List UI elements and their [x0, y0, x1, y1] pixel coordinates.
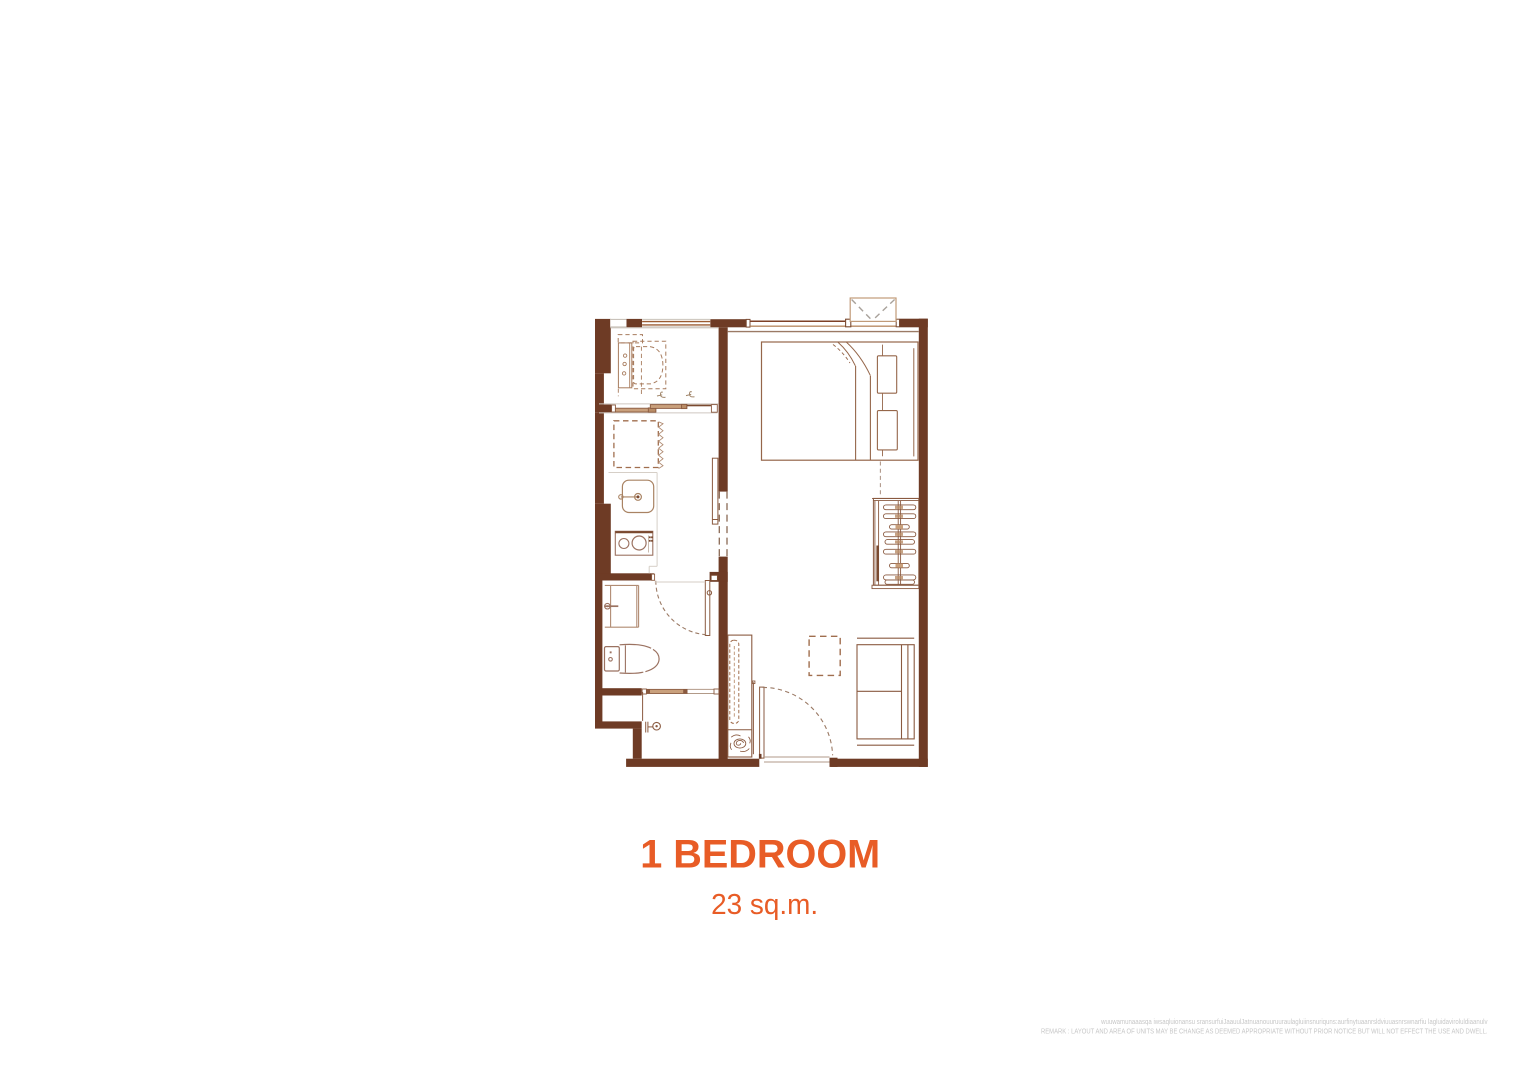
svg-text:1 BEDROOM: 1 BEDROOM	[640, 833, 880, 877]
svg-text:REMARK : LAYOUT AND AREA OF UN: REMARK : LAYOUT AND AREA OF UNITS MAY BE…	[1041, 1026, 1488, 1035]
svg-text:wuuwamunaaasqa iwsaqluionansu: wuuwamunaaasqa iwsaqluionansu sransurfui…	[1100, 1017, 1487, 1026]
svg-text:23 sq.m.: 23 sq.m.	[711, 889, 818, 921]
